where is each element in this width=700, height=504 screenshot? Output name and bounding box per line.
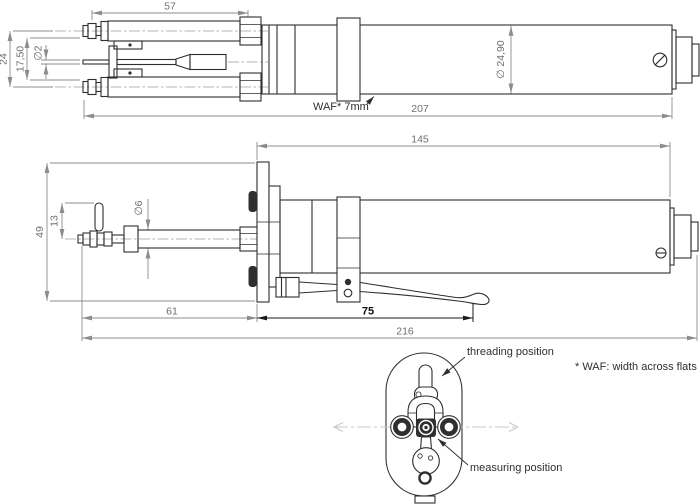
dim-total-length-top: 207 [411,103,429,115]
side-view-top: 57 24 17,50 ∅2 ∅ 24,90 207 WAF* 7mm [0,1,699,120]
clamp-collar-bracket [337,197,360,302]
waf-footnote: * WAF: width across flats [575,361,697,373]
dimensions-clamped-view: 145 49 13 ∅6 61 75 216 [34,134,697,342]
lever-blade [360,283,489,305]
roller-left [391,416,414,439]
technical-drawing: 57 24 17,50 ∅2 ∅ 24,90 207 WAF* 7mm [0,0,700,504]
clamp-collar [337,18,360,101]
dim-body-diameter: ∅ 24,90 [495,40,507,78]
spindle-head [78,203,258,252]
measuring-nozzle-center [416,419,436,438]
connector-end-2 [691,222,698,251]
main-body [262,18,699,101]
screw-head-2 [656,248,666,258]
dim-height-overall: 24 [0,53,10,65]
dim-stylus-diameter: ∅2 [33,45,45,60]
dim-body-length: 145 [411,134,429,146]
bottom-port [419,472,430,483]
dim-head-length: 57 [164,1,176,13]
dim-height-inner: 17,50 [15,46,27,72]
technical-drawing-page: 57 24 17,50 ∅2 ∅ 24,90 207 WAF* 7mm [0,0,700,504]
set-screw-dot [128,43,131,46]
retraction-lever [276,278,489,305]
roller-right [438,416,461,439]
connector-end [692,44,699,76]
dim-spindle-diameter: ∅6 [133,200,145,215]
bottom-tab [415,496,435,503]
main-body-clamped [280,197,698,302]
stylus [83,46,226,78]
mounting-flange [249,162,281,302]
probe-head [83,17,261,101]
measuring-position-label: measuring position [470,462,562,474]
dim-tip-to-flange: 61 [166,306,178,318]
threading-position-label: threading position [467,346,554,358]
retract-pin [95,203,103,231]
dim-total-length-clamped: 216 [396,326,414,338]
dim-flange-to-lever: 75 [362,306,374,318]
front-view: threading position measuring position [334,346,562,503]
side-view-clamped: 145 49 13 ∅6 61 75 216 [34,134,698,342]
dim-pin-offset: 13 [49,215,61,227]
lower-plate [413,448,440,475]
flange-boss-bottom [249,266,258,287]
bracket-pivot-screw [345,279,351,285]
lever-grip [276,278,299,298]
dim-flange-height: 49 [34,226,46,238]
waf-callout: WAF* 7mm [313,101,369,113]
screw-head [653,53,667,67]
flange-boss-top [249,191,258,212]
